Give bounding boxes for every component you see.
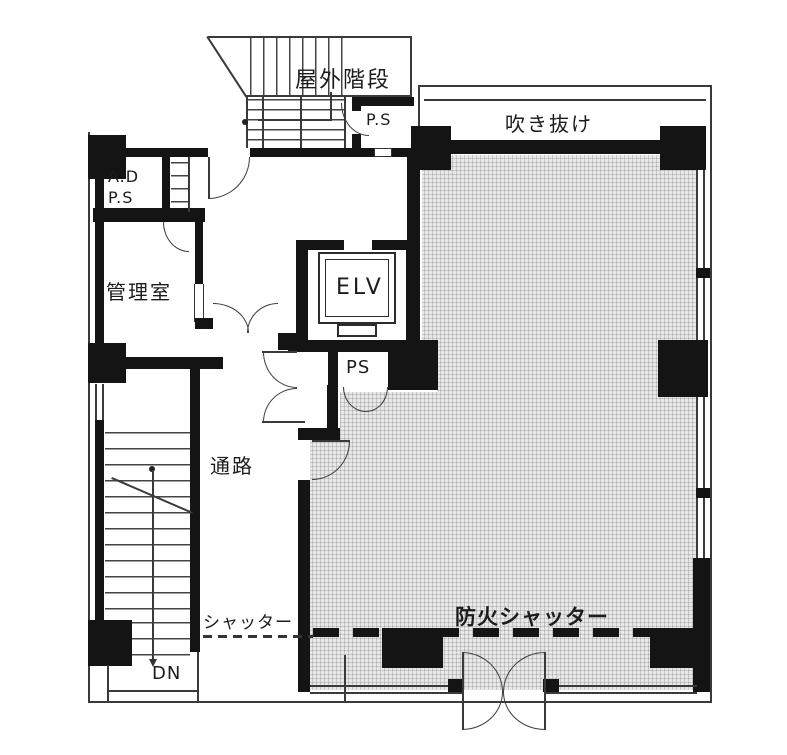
window-left	[95, 384, 97, 421]
stair-flow-line	[152, 470, 154, 660]
door-arc-entry-corridor	[208, 157, 250, 199]
column-bottom-left	[88, 620, 132, 666]
wall-adps-right	[162, 148, 170, 212]
mullion-tick	[696, 488, 710, 498]
label-shutter: シャッター	[203, 608, 293, 633]
wall-elevator-right	[406, 240, 420, 352]
column-main-top-right	[660, 126, 706, 170]
column-shutter-left	[382, 628, 443, 668]
label-ps-mid: PS	[346, 357, 370, 378]
outdoor-stair-right-line	[410, 36, 412, 97]
window-right-lower	[696, 397, 698, 558]
door-arc-double-upper	[247, 303, 278, 333]
wall-bottom-line	[545, 692, 697, 694]
wall-bottom-line	[310, 692, 462, 694]
label-leader-line	[330, 92, 332, 120]
outer-line-left	[88, 132, 90, 702]
door-leaf-entry-corridor	[208, 157, 210, 199]
stair-flow-dot	[242, 119, 248, 125]
stair-porch-line	[197, 652, 199, 702]
wall-ps-upper-bottom	[352, 148, 374, 157]
wall-main-left-jog	[298, 428, 340, 440]
wall-ps-left	[328, 352, 338, 390]
window-left	[102, 384, 104, 421]
label-ps-upper: P.S	[366, 110, 391, 129]
wall-elevator-left	[296, 240, 308, 352]
label-corridor: 通路	[210, 450, 254, 479]
outdoor-stair-diagonal-line	[206, 36, 247, 97]
label-ad: A.D	[108, 166, 139, 187]
label-manager-room: 管理室	[106, 276, 172, 305]
atrium-inner-line	[424, 99, 706, 101]
outdoor-stair-stringer-line	[262, 97, 264, 148]
wall-right-lower	[693, 558, 710, 692]
wall-bottom-line	[545, 685, 697, 687]
wall-stair-right	[190, 368, 200, 652]
label-elevator: ELV	[336, 275, 384, 300]
shaft-ladder-rungs	[171, 162, 188, 212]
stair-treads	[105, 432, 190, 622]
label-atrium: 吹き抜け	[505, 108, 593, 137]
window-right-upper	[696, 170, 698, 340]
door-arc-double-lower	[263, 352, 297, 388]
label-ps-shaft: P.S	[108, 188, 133, 207]
wall-elevator-top	[296, 240, 344, 250]
label-leader-line	[258, 119, 332, 121]
door-arc-double-upper	[213, 303, 249, 333]
shutter-line	[203, 635, 313, 638]
outer-line-bottom	[88, 701, 711, 703]
label-fire-shutter: 防火シャッター	[455, 601, 609, 631]
window-right-upper	[703, 170, 705, 340]
floor-plan: 屋外階段 P.S 吹き抜け A.D P.S 管理室 ELV PS 通路 シャッタ…	[0, 0, 787, 755]
shaft-ladder-side-line	[188, 157, 190, 212]
wall-main-left-lower	[298, 480, 310, 692]
mullion-tick	[696, 268, 710, 278]
entrance-door-arc	[503, 692, 545, 730]
elevator-door-box	[337, 324, 377, 337]
outer-line-right	[710, 85, 712, 703]
outdoor-stair-stringer-line	[300, 97, 302, 148]
column-bottom-right	[650, 628, 695, 668]
wall-ps-upper-bottom	[394, 148, 420, 157]
wall-bottom-line	[310, 685, 462, 687]
stair-porch-line	[107, 690, 198, 692]
window-manager-room	[194, 284, 204, 322]
door-arc-manager-room	[163, 222, 189, 252]
entrance-door-arc	[462, 692, 503, 730]
wall-nub-corridor-door	[195, 318, 213, 329]
stair-porch-line	[107, 665, 109, 702]
porch-line	[344, 655, 346, 702]
stair-treads-lower	[132, 622, 190, 664]
window-right-lower	[703, 397, 705, 558]
atrium-outer-top-line	[418, 85, 711, 87]
column-right-middle	[658, 340, 708, 397]
label-down: DN	[152, 663, 181, 684]
column-ps-block	[388, 340, 438, 390]
door-tick-ps-upper	[374, 148, 392, 157]
wall-manager-bottom	[93, 357, 223, 369]
door-arc-double-lower	[263, 388, 297, 422]
wall-left-lower	[95, 420, 104, 622]
label-outdoor-stairs: 屋外階段	[295, 62, 391, 94]
